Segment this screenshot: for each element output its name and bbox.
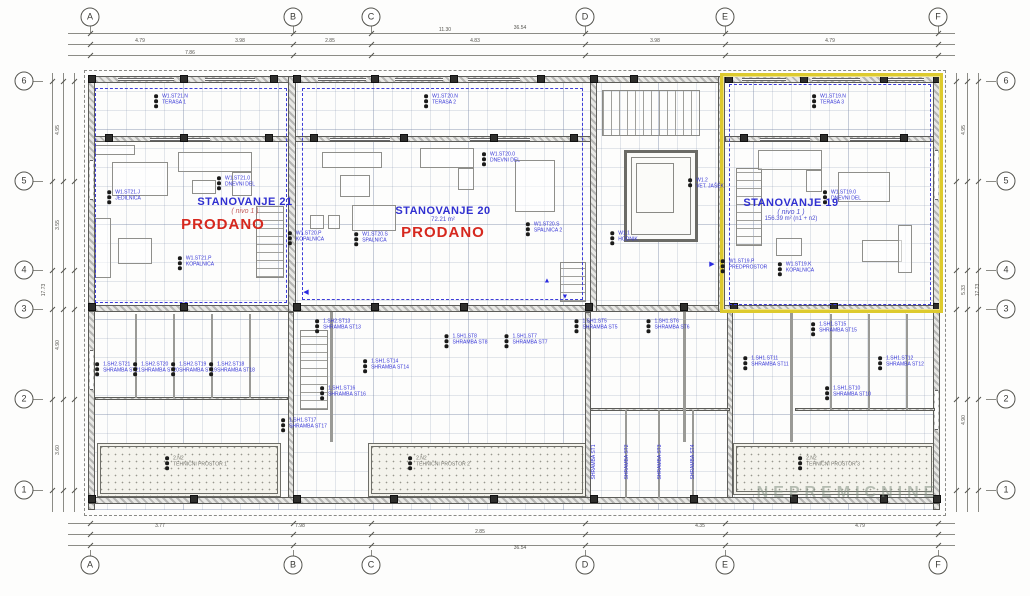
wall-segment <box>585 312 591 498</box>
entrance-arrow: ▲ <box>544 278 551 285</box>
grid-leader <box>986 309 996 310</box>
wall-segment <box>727 312 733 498</box>
apartment-19-name: STANOVANJE 19 <box>743 197 838 209</box>
column <box>180 303 188 311</box>
dimension-value: 36.54 <box>514 545 527 551</box>
room-annotation: W1.ST20.NTERASA 2 <box>432 94 458 106</box>
terrace-1 <box>97 443 281 497</box>
room-annotation: W1.ST21.PKOPALNICA <box>186 256 214 268</box>
floor-plan-canvas: AABBCCDDEEFF6655443322114.793.982.854.83… <box>0 0 1030 596</box>
column <box>293 495 301 503</box>
column <box>293 75 301 83</box>
column <box>293 303 301 311</box>
room-annotation: 1.SH1.ST11SHRAMBA ST11 <box>751 356 788 368</box>
dimension-line <box>74 73 75 512</box>
grid-leader <box>33 181 43 182</box>
dimension-value: 3.98 <box>650 38 660 44</box>
elevator-car <box>636 163 674 213</box>
column <box>680 303 688 311</box>
dimension-value: 5.33 <box>961 285 967 295</box>
column <box>371 303 379 311</box>
column <box>390 495 398 503</box>
apartment-20-name: STANOVANJE 20 <box>395 205 490 217</box>
column <box>460 303 468 311</box>
wall-segment <box>95 397 288 400</box>
room-annotation: SHRAMBA ST2 <box>625 444 631 479</box>
room-annotation: SHRAMBA ST1 <box>592 444 598 479</box>
column <box>190 495 198 503</box>
column <box>630 75 638 83</box>
window <box>90 350 93 390</box>
wall-segment <box>795 408 935 411</box>
room-annotation: 2.N2TEHNIČNI PROSTOR 3 <box>806 456 860 468</box>
grid-leader <box>33 81 43 82</box>
room-annotation: W1.1HODNIK <box>618 231 637 243</box>
room-annotation: 1.SH1.ST17SHRAMBA ST17 <box>289 418 327 430</box>
room-annotation: 2.N2TEHNIČNI PROSTOR 1 <box>173 456 227 468</box>
dimension-line <box>52 73 53 512</box>
grid-row-bubble: 6 <box>997 72 1016 91</box>
column <box>180 75 188 83</box>
room-annotation: W1.ST20.SSPALNICA 2 <box>534 222 562 234</box>
dimension-value: 3.55 <box>55 220 61 230</box>
room-annotation: 1.SH1.ST5SHRAMBA ST5 <box>582 319 617 331</box>
window <box>90 160 93 200</box>
dimension-value: 17.73 <box>975 284 981 297</box>
room-annotation: 1.SH1.ST10SHRAMBA ST10 <box>833 386 871 398</box>
dimension-value: 2.85 <box>475 529 485 535</box>
partition-wall <box>135 314 137 398</box>
grid-leader <box>986 490 996 491</box>
dimension-value: 4.95 <box>55 125 61 135</box>
column <box>88 303 96 311</box>
wall-segment <box>288 76 296 312</box>
window <box>468 78 520 81</box>
dimension-value: 7.86 <box>185 50 195 56</box>
grid-column-bubble: D <box>576 556 595 575</box>
grid-column-bubble: E <box>716 8 735 27</box>
grid-column-bubble: F <box>929 556 948 575</box>
window <box>935 390 938 430</box>
grid-column-bubble: A <box>81 556 100 575</box>
grid-row-bubble: 4 <box>15 261 34 280</box>
column <box>585 303 593 311</box>
dimension-line <box>68 55 955 56</box>
staircase-core <box>602 90 700 136</box>
grid-leader <box>986 181 996 182</box>
apartment-20-status: PRODANO <box>395 224 490 241</box>
wall-segment <box>288 312 294 498</box>
wall-segment <box>590 408 730 411</box>
grid-column-bubble: D <box>576 8 595 27</box>
staircase-lower <box>300 330 328 410</box>
grid-leader <box>33 270 43 271</box>
room-annotation: W1.ST19.KKOPALNICA <box>786 262 814 274</box>
window <box>118 78 174 81</box>
column <box>537 75 545 83</box>
room-annotation: W1.ST19.PPREDPROSTOR <box>729 259 768 271</box>
grid-leader <box>986 81 996 82</box>
grid-leader <box>33 399 43 400</box>
apartment-21-status: PRODANO <box>175 216 270 233</box>
dimension-value: 2.85 <box>325 38 335 44</box>
partition-wall <box>249 314 251 398</box>
grid-column-bubble: F <box>929 8 948 27</box>
watermark: NEPREMICNINE <box>742 484 954 502</box>
room-annotation: 2.N2TEHNIČNI PROSTOR 2 <box>416 456 470 468</box>
column <box>88 75 96 83</box>
grid-column-bubble: C <box>362 8 381 27</box>
window <box>205 78 255 81</box>
entrance-arrow: ◀ <box>303 288 308 296</box>
grid-row-bubble: 2 <box>997 390 1016 409</box>
grid-row-bubble: 2 <box>15 390 34 409</box>
grid-leader <box>33 490 43 491</box>
dimension-value: 4.35 <box>695 523 705 529</box>
elevator-shaft <box>624 150 698 242</box>
column <box>371 75 379 83</box>
grid-column-bubble: A <box>81 8 100 27</box>
dimension-value: 4.79 <box>825 38 835 44</box>
grid-row-bubble: 5 <box>997 172 1016 191</box>
column <box>270 75 278 83</box>
grid-leader <box>986 270 996 271</box>
room-annotation: W1.ST20.PKOPALNICA <box>296 231 324 243</box>
room-annotation: W1.ST19.NTERASA 3 <box>820 94 846 106</box>
apartment-21-label: STANOVANJE 21 ( nivo 1 ) PRODANO <box>197 196 292 233</box>
dimension-value: 7.98 <box>295 523 305 529</box>
room-annotation: W1.ST20.SSPALNICA <box>362 232 388 244</box>
room-annotation: 1.SH1.ST12SHRAMBA ST12 <box>886 356 924 368</box>
apartment-19-area: 156.39 m² (n1 + n2) <box>743 216 838 222</box>
room-annotation: W1.ST21.NTERASA 1 <box>162 94 188 106</box>
column <box>490 495 498 503</box>
apartment-20-area: 72.21 m² <box>395 217 490 223</box>
dimension-value: 4.79 <box>135 38 145 44</box>
wall-segment <box>88 76 95 510</box>
room-annotation: SHRAMBA ST4 <box>691 444 697 479</box>
grid-row-bubble: 3 <box>15 300 34 319</box>
dimension-line <box>63 73 64 512</box>
room-annotation: 1.SH1.ST15SHRAMBA ST15 <box>819 322 857 334</box>
partition-wall <box>173 314 175 398</box>
dimension-line <box>967 73 968 512</box>
apartment-19-level: ( nivo 1 ) <box>743 209 838 216</box>
room-annotation: W1.2VET. JAŠEK <box>696 178 724 190</box>
grid-column-bubble: B <box>284 556 303 575</box>
grid-row-bubble: 6 <box>15 72 34 91</box>
dimension-value: 3.98 <box>235 38 245 44</box>
room-annotation: W1.ST21.JJEDILNICA <box>115 190 141 202</box>
dimension-line <box>68 545 955 546</box>
dimension-value: 4.79 <box>855 523 865 529</box>
apartment-20-label: STANOVANJE 20 72.21 m² PRODANO <box>395 205 490 241</box>
apartment-21-level: ( nivo 1 ) <box>197 208 292 215</box>
room-annotation: 1.SH1.ST7SHRAMBA ST7 <box>512 334 547 346</box>
dimension-line <box>956 73 957 512</box>
apartment-19-label: STANOVANJE 19 ( nivo 1 ) 156.39 m² (n1 +… <box>743 197 838 222</box>
entrance-arrow: ▼ <box>562 294 569 301</box>
room-annotation: SHRAMBA ST3 <box>658 444 664 479</box>
dimension-value: 4.90 <box>961 415 967 425</box>
dimension-value: 17.73 <box>41 284 47 297</box>
room-annotation: 1.SH1.ST14SHRAMBA ST14 <box>371 359 409 371</box>
room-annotation: 1.SH2.ST18SHRAMBA ST18 <box>217 362 255 374</box>
grid-column-bubble: B <box>284 8 303 27</box>
grid-column-bubble: C <box>362 556 381 575</box>
room-annotation: 1.SH1.ST8SHRAMBA ST8 <box>452 334 487 346</box>
dimension-line <box>68 534 955 535</box>
column <box>450 75 458 83</box>
grid-row-bubble: 1 <box>15 481 34 500</box>
apartment-21-name: STANOVANJE 21 <box>197 196 292 208</box>
dimension-line <box>68 33 955 34</box>
dimension-value: 36.54 <box>514 25 527 31</box>
window <box>318 78 366 81</box>
terrace-2 <box>368 443 586 497</box>
partition-wall <box>683 312 686 442</box>
room-annotation: W1.ST20.0DNEVNI DEL <box>490 152 520 164</box>
partition-wall <box>211 314 213 398</box>
partition-wall <box>330 312 333 442</box>
grid-row-bubble: 1 <box>997 481 1016 500</box>
dimension-value: 11.30 <box>439 27 451 33</box>
room-annotation: 1.SH2.ST13SHRAMBA ST13 <box>323 319 361 331</box>
dimension-value: 4.95 <box>961 125 967 135</box>
grid-row-bubble: 3 <box>997 300 1016 319</box>
dimension-line <box>68 44 955 45</box>
dimension-value: 3.60 <box>55 445 61 455</box>
dimension-value: 3.77 <box>155 523 165 529</box>
room-annotation: 1.SH1.ST16SHRAMBA ST16 <box>328 386 366 398</box>
dimension-value: 4.83 <box>470 38 480 44</box>
column <box>590 495 598 503</box>
grid-leader <box>986 399 996 400</box>
grid-row-bubble: 5 <box>15 172 34 191</box>
dimension-value: 4.90 <box>55 340 61 350</box>
column <box>690 495 698 503</box>
wall-segment <box>590 76 597 312</box>
grid-leader <box>33 309 43 310</box>
grid-column-bubble: E <box>716 556 735 575</box>
partition-wall <box>790 312 793 442</box>
entrance-arrow: ▶ <box>709 260 714 268</box>
column <box>88 495 96 503</box>
dimension-line <box>68 523 955 524</box>
grid-row-bubble: 4 <box>997 261 1016 280</box>
unit-boundary-20 <box>302 88 583 300</box>
column <box>590 75 598 83</box>
window <box>395 78 443 81</box>
room-annotation: 1.SH1.ST6SHRAMBA ST6 <box>654 319 689 331</box>
room-annotation: W1.ST21.0DNEVNI DEL <box>225 176 255 188</box>
